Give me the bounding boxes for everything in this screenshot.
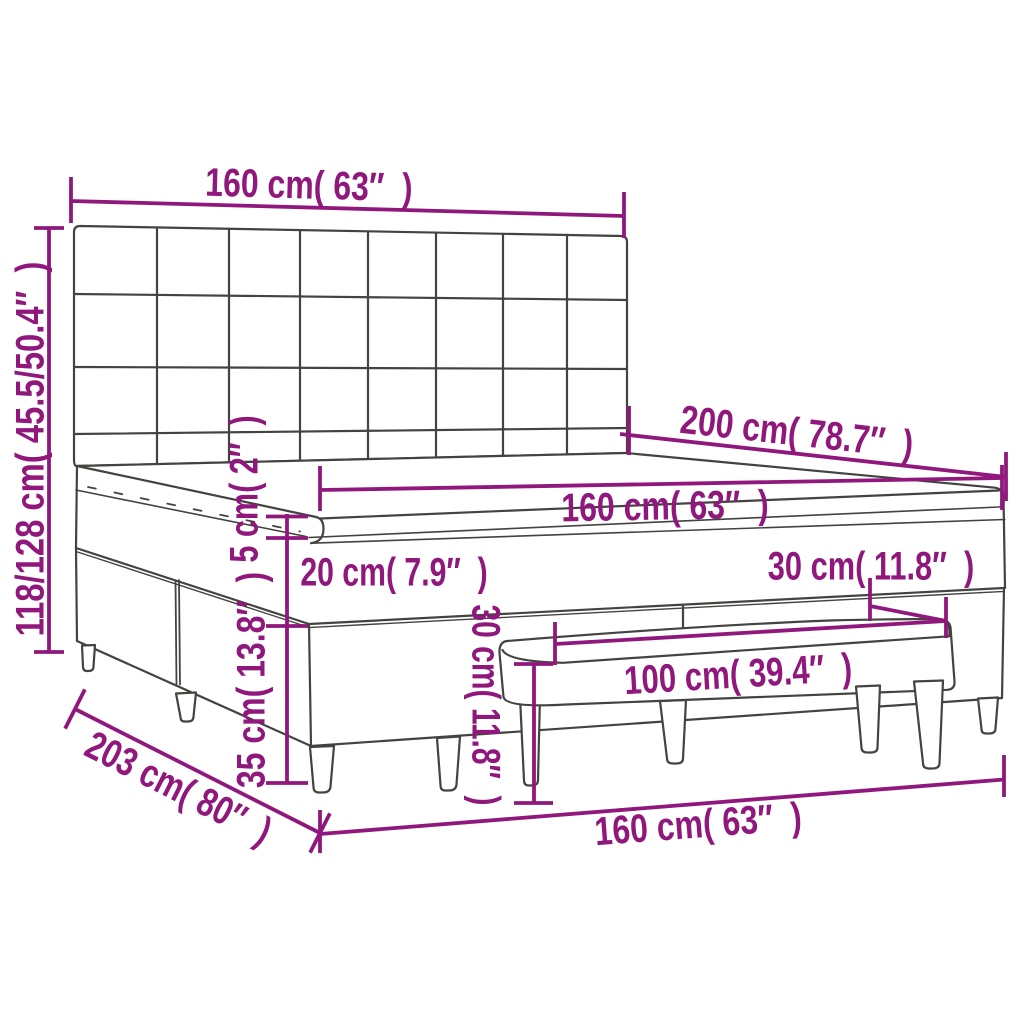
svg-text:30 cm( 11.8″ ): 30 cm( 11.8″ ) <box>463 604 507 805</box>
svg-text:160 cm( 63″ ): 160 cm( 63″ ) <box>205 159 414 210</box>
svg-text:5 cm( 2″ ): 5 cm( 2″ ) <box>222 415 267 562</box>
svg-text:118/128 cm( 45.5/50.4″ ): 118/128 cm( 45.5/50.4″ ) <box>7 262 52 637</box>
svg-text:160 cm( 63″ ): 160 cm( 63″ ) <box>593 793 803 854</box>
svg-text:200 cm( 78.7″ ): 200 cm( 78.7″ ) <box>678 396 916 467</box>
svg-text:20 cm( 7.9″ ): 20 cm( 7.9″ ) <box>300 549 487 594</box>
svg-text:160 cm( 63″ ): 160 cm( 63″ ) <box>561 481 769 530</box>
svg-text:35 cm( 13.8″ ): 35 cm( 13.8″ ) <box>228 572 273 788</box>
svg-text:30 cm( 11.8″ ): 30 cm( 11.8″ ) <box>768 544 974 589</box>
